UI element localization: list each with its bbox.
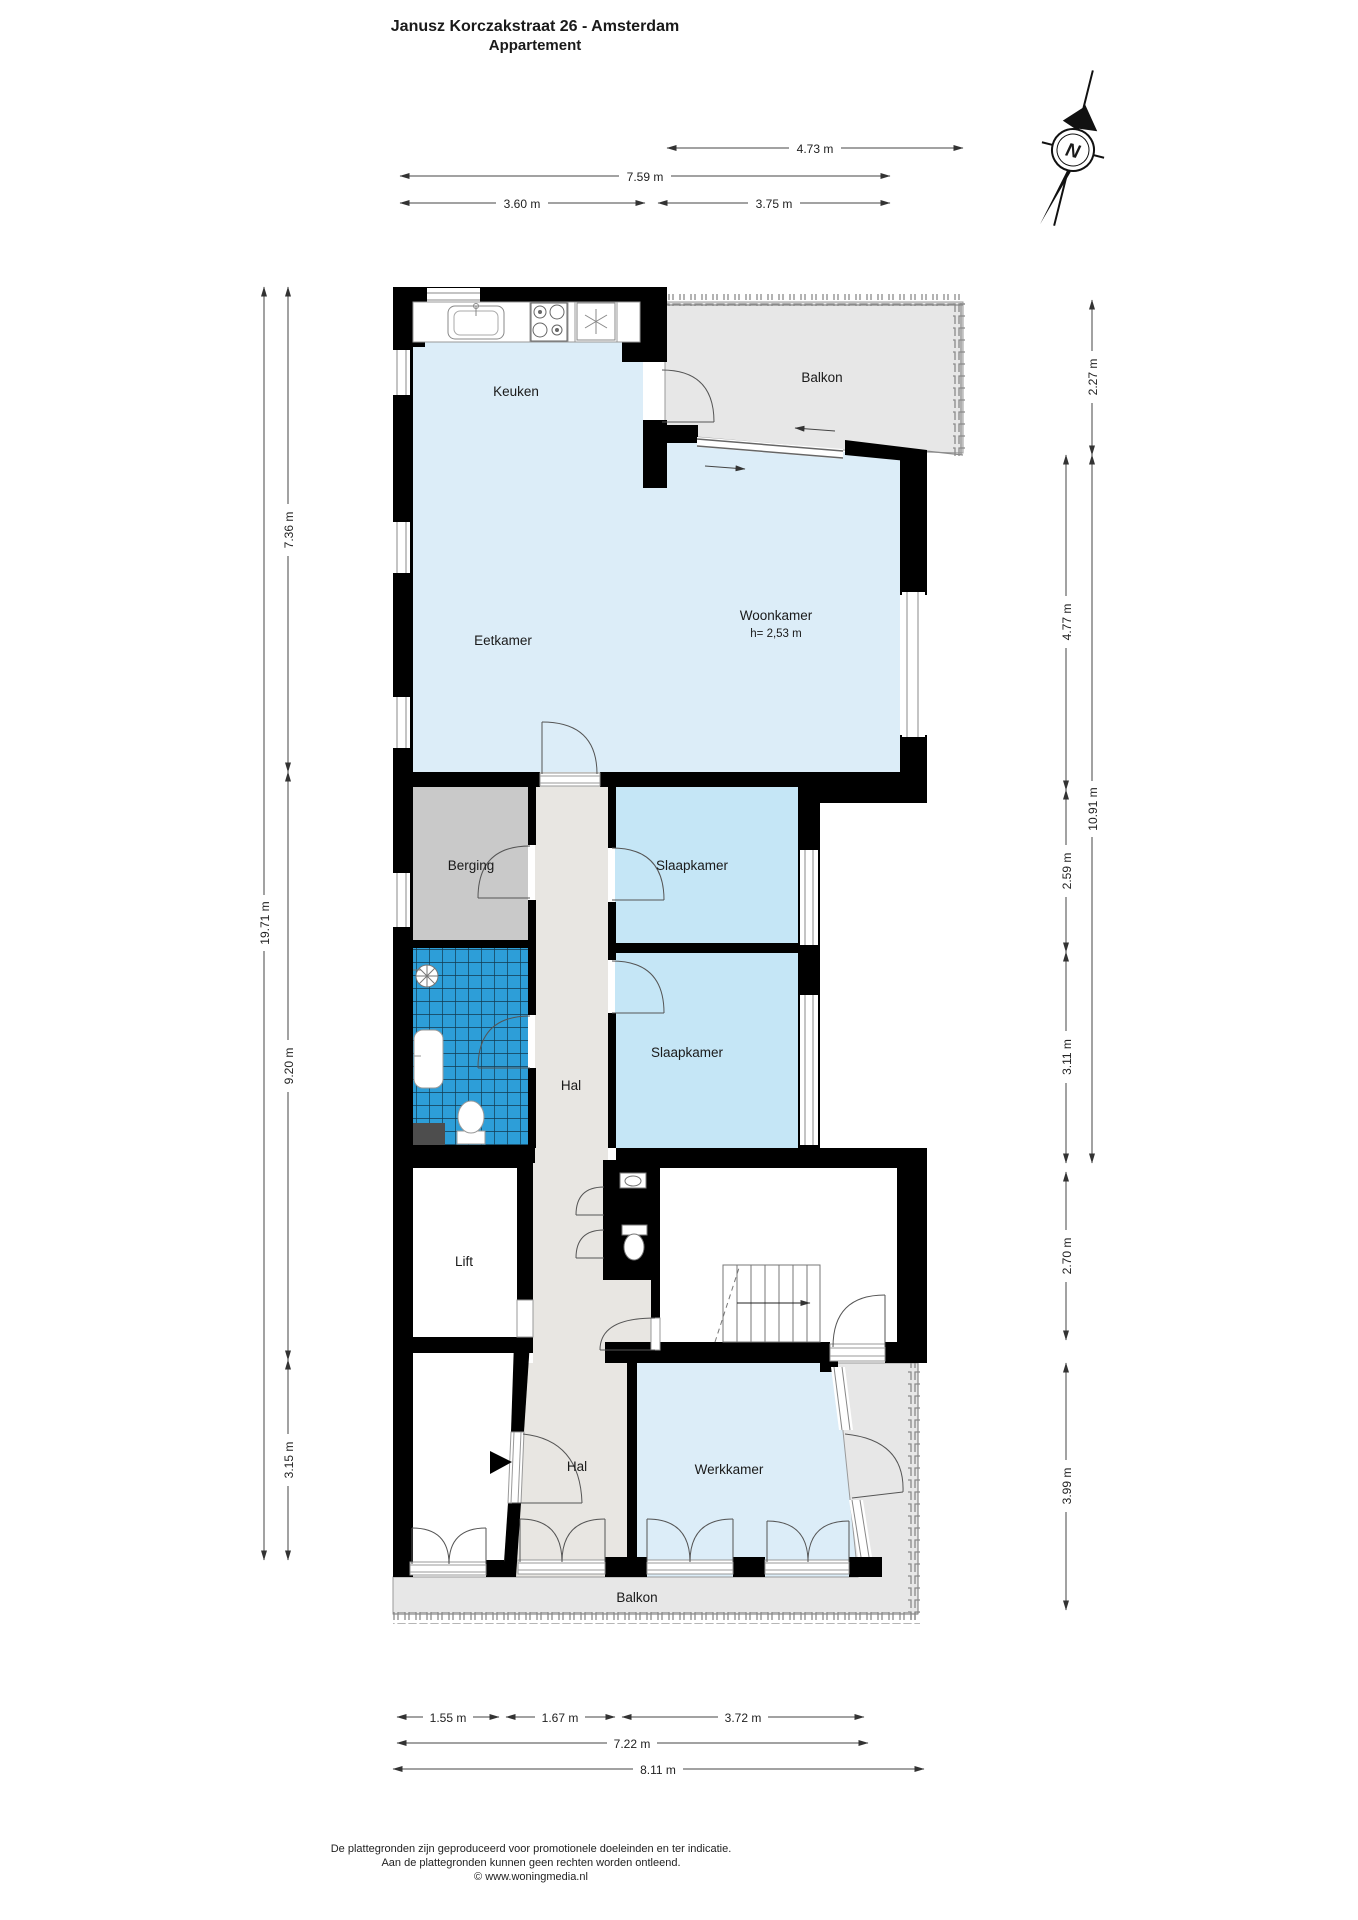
room-label-slaapkamer-2: Slaapkamer: [651, 1045, 724, 1060]
svg-text:7.22 m: 7.22 m: [614, 1737, 651, 1751]
room-label-werkkamer: Werkkamer: [695, 1462, 764, 1477]
wc-washbasin-icon: [620, 1173, 646, 1188]
footer-line-2: Aan de plattegronden kunnen geen rechten…: [381, 1857, 680, 1869]
bath-mat: [413, 1123, 445, 1145]
stove-icon: [531, 303, 567, 341]
compass-icon: N: [1023, 63, 1124, 236]
room-label-keuken: Keuken: [493, 384, 539, 399]
dim-right-6: 2.70 m: [1058, 1172, 1074, 1340]
dim-bottom-4: 7.22 m: [397, 1735, 868, 1751]
dim-left-2: 9.20 m: [280, 772, 296, 1360]
dim-right-2: 10.91 m: [1084, 455, 1100, 1163]
dim-right-3: 4.77 m: [1058, 455, 1074, 790]
dim-bottom-2: 1.67 m: [506, 1709, 615, 1725]
sink-icon: [448, 304, 504, 340]
room-label-woonkamer: Woonkamer: [740, 608, 813, 623]
door-frans-kamer: [412, 1528, 486, 1564]
footer-line-3: © www.woningmedia.nl: [474, 1871, 588, 1883]
room-label-balkon-onder: Balkon: [616, 1590, 657, 1605]
page-title: Janusz Korczakstraat 26 - Amsterdam Appa…: [391, 18, 679, 54]
dim-top-1: 4.73 m: [667, 140, 963, 156]
svg-text:9.20 m: 9.20 m: [282, 1048, 296, 1085]
washbasin-icon: [414, 1030, 443, 1088]
stairs-icon: [715, 1265, 820, 1342]
svg-text:3.99 m: 3.99 m: [1060, 1468, 1074, 1505]
dim-right-7: 3.99 m: [1058, 1363, 1074, 1610]
svg-text:1.55 m: 1.55 m: [430, 1711, 467, 1725]
footer: De plattegronden zijn geproduceerd voor …: [331, 1843, 732, 1883]
svg-text:3.72 m: 3.72 m: [725, 1711, 762, 1725]
svg-text:3.11 m: 3.11 m: [1060, 1039, 1074, 1075]
room-label-lift: Lift: [455, 1254, 473, 1269]
fridge-icon: [577, 303, 615, 340]
dim-bottom-3: 3.72 m: [622, 1709, 864, 1725]
room-label-eetkamer: Eetkamer: [474, 633, 532, 648]
title-address: Janusz Korczakstraat 26 - Amsterdam: [391, 18, 679, 35]
dim-top-3: 3.60 m: [400, 195, 645, 211]
dim-top-4: 3.75 m: [658, 195, 890, 211]
room-label-slaapkamer-1: Slaapkamer: [656, 858, 729, 873]
floor-plan-drawing: Janusz Korczakstraat 26 - Amsterdam Appa…: [0, 0, 1358, 1920]
title-subtitle: Appartement: [489, 37, 582, 54]
room-label-berging: Berging: [448, 858, 495, 873]
railing-top: [665, 294, 965, 306]
svg-text:4.73 m: 4.73 m: [797, 142, 834, 156]
railing-top-right: [953, 302, 965, 457]
dim-left-1: 7.36 m: [280, 287, 296, 772]
svg-text:3.15 m: 3.15 m: [282, 1442, 296, 1479]
svg-text:10.91 m: 10.91 m: [1086, 787, 1100, 830]
svg-text:1.67 m: 1.67 m: [542, 1711, 579, 1725]
svg-text:2.27 m: 2.27 m: [1086, 359, 1100, 396]
svg-text:4.77 m: 4.77 m: [1060, 604, 1074, 641]
footer-line-1: De plattegronden zijn geproduceerd voor …: [331, 1843, 732, 1855]
dim-left-3: 3.15 m: [280, 1360, 296, 1560]
room-label-woonkamer-hoogte: h= 2,53 m: [750, 628, 801, 640]
dim-right-1: 2.27 m: [1084, 300, 1100, 455]
dim-left-total: 19.71 m: [256, 287, 272, 1560]
dim-bottom-5: 8.11 m: [393, 1761, 924, 1777]
entrance-arrow-icon: [490, 1451, 512, 1474]
toilet-icon: [457, 1101, 485, 1144]
dim-right-5: 3.11 m: [1058, 952, 1074, 1163]
svg-text:7.59 m: 7.59 m: [627, 170, 664, 184]
dim-top-2: 7.59 m: [400, 168, 890, 184]
svg-text:2.70 m: 2.70 m: [1060, 1238, 1074, 1275]
room-label-hal-boven: Hal: [561, 1078, 581, 1093]
floor-plan-page: Janusz Korczakstraat 26 - Amsterdam Appa…: [0, 0, 1358, 1920]
dim-bottom-1: 1.55 m: [397, 1709, 499, 1725]
svg-text:7.36 m: 7.36 m: [282, 512, 296, 549]
svg-text:2.59 m: 2.59 m: [1060, 853, 1074, 890]
room-label-hal-onder: Hal: [567, 1459, 587, 1474]
svg-text:19.71 m: 19.71 m: [258, 901, 272, 944]
door-trap-werk: [833, 1295, 885, 1347]
svg-text:3.60 m: 3.60 m: [504, 197, 541, 211]
svg-text:3.75 m: 3.75 m: [756, 197, 793, 211]
svg-text:8.11 m: 8.11 m: [640, 1763, 676, 1777]
dim-right-4: 2.59 m: [1058, 790, 1074, 952]
room-label-balkon-boven: Balkon: [801, 370, 842, 385]
